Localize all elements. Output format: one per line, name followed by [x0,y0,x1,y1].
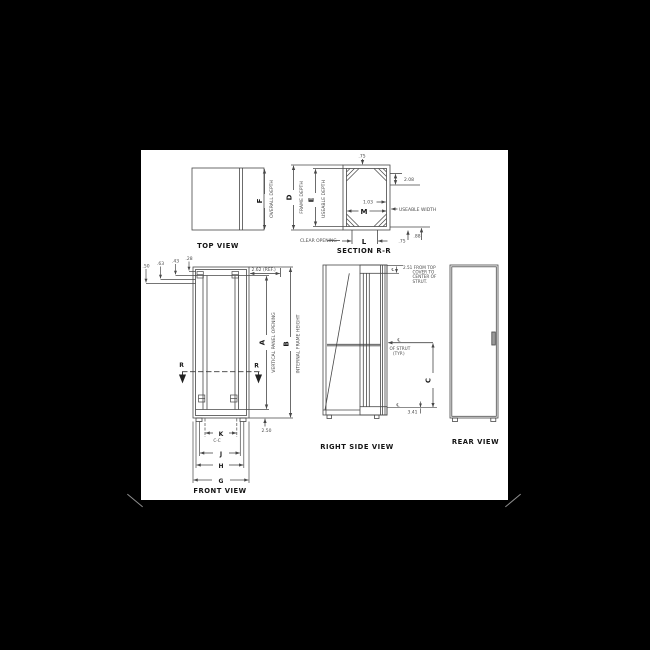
rear-view: REAR VIEW [450,265,499,446]
rear-door-handle [492,332,496,345]
section-mark-right: R [254,363,259,370]
front-view: R R .50 .63 .43 .28 2.62 (REF.) A [142,256,301,495]
offset-value-4: .28 [185,256,192,262]
section-rr-title: SECTION R-R [337,247,392,255]
dim-letter-f: F [256,198,264,203]
top-view-title: TOP VIEW [197,242,239,250]
centerline-symbol-mid: ℄ [398,337,401,343]
rear-door-inner [452,267,497,417]
strut-note-line-2: (TYP.) [393,351,405,356]
useable-depth-dim [313,169,347,227]
section-mark-left: R [179,362,184,369]
dim-letter-g: G [219,478,224,485]
panel-opening-label: VERTICAL PANEL OPENING [271,312,277,373]
side-top-cap [360,265,387,273]
top-ref-value: 2.62 (REF.) [252,267,276,273]
rack-cabinet-drawing: F OVERALL DEPTH TOP VIEW M 1. [141,150,508,500]
clear-opening-label: CLEAR OPENING [300,238,337,244]
bottom-flange-value: .88 [413,234,420,240]
mounting-rails [203,276,239,410]
flange-offset-dims [146,262,196,284]
right-side-view: ℄ 2.51 FROM TOP COVER TO CENTER OF STRUT… [320,265,437,451]
dim-letter-c: C [425,378,433,383]
dim-letter-a: A [259,339,267,345]
offset-value-1: .50 [142,264,149,270]
rear-view-title: REAR VIEW [452,438,499,446]
rear-door-outline [450,265,498,418]
bottom-wall-value: .75 [398,239,405,245]
bottom-flange-dims [390,227,430,240]
section-inner-frame [347,169,387,227]
front-feet [196,418,246,422]
top-note-line-4: STRUT. [413,279,428,284]
side-diagonal-brace [325,273,349,410]
rail-cc-sub: C-C [213,438,220,443]
side-outline [323,265,387,415]
side-bottom-cap [360,407,387,415]
top-view: F OVERALL DEPTH TOP VIEW [192,168,275,250]
useable-width-label: USEABLE WIDTH [399,207,436,213]
offset-value-3: .43 [172,259,179,265]
dim-letter-l: L [362,238,367,246]
side-feet [327,415,379,419]
dim-letter-e: E [308,197,316,202]
dim-letter-b: B [283,341,291,346]
right-side-view-title: RIGHT SIDE VIEW [320,443,394,451]
dim-letter-m: M [361,208,368,216]
side-offset-value: 2.08 [404,177,414,183]
overall-depth-label: OVERALL DEPTH [269,180,275,218]
rear-feet [453,418,496,422]
centerline-symbol-bottom: ℄ [397,402,400,408]
dim-letter-j: J [219,451,222,458]
frame-depth-dim [291,165,343,230]
front-outer-frame [193,267,249,418]
dim-letter-h: H [218,463,223,470]
useable-depth-label: USEABLE DEPTH [321,180,327,218]
top-cover-note-dim [387,266,403,274]
top-view-outline [192,168,264,230]
section-rr: M 1.03 .75 2.08 USEABLE WIDTH .88 .75 [286,154,437,256]
dim-letter-d: D [286,194,294,200]
offset-value-2: .63 [157,261,164,267]
top-view-door-face-lines [240,168,243,230]
strut-to-base-value: 3.41 [407,410,417,416]
frame-height-label: INTERNAL FRAME HEIGHT [296,314,302,373]
centerline-symbol-top: ℄ [392,267,395,272]
drawing-sheet: F OVERALL DEPTH TOP VIEW M 1. [141,150,508,500]
horizontal-strut [327,344,381,346]
corner-gussets [347,169,387,227]
base-height-value: 2.50 [261,428,271,434]
inner-offset-value: 1.03 [363,200,373,206]
dim-letter-k: K [219,431,224,438]
frame-depth-label: FRAME DEPTH [299,181,305,214]
section-outer-frame [343,165,390,230]
strut-columns [360,273,369,406]
side-rear-member [381,265,386,415]
front-view-title: FRONT VIEW [193,487,246,495]
top-wall-value: .75 [358,154,365,160]
section-cut-line [182,372,260,383]
